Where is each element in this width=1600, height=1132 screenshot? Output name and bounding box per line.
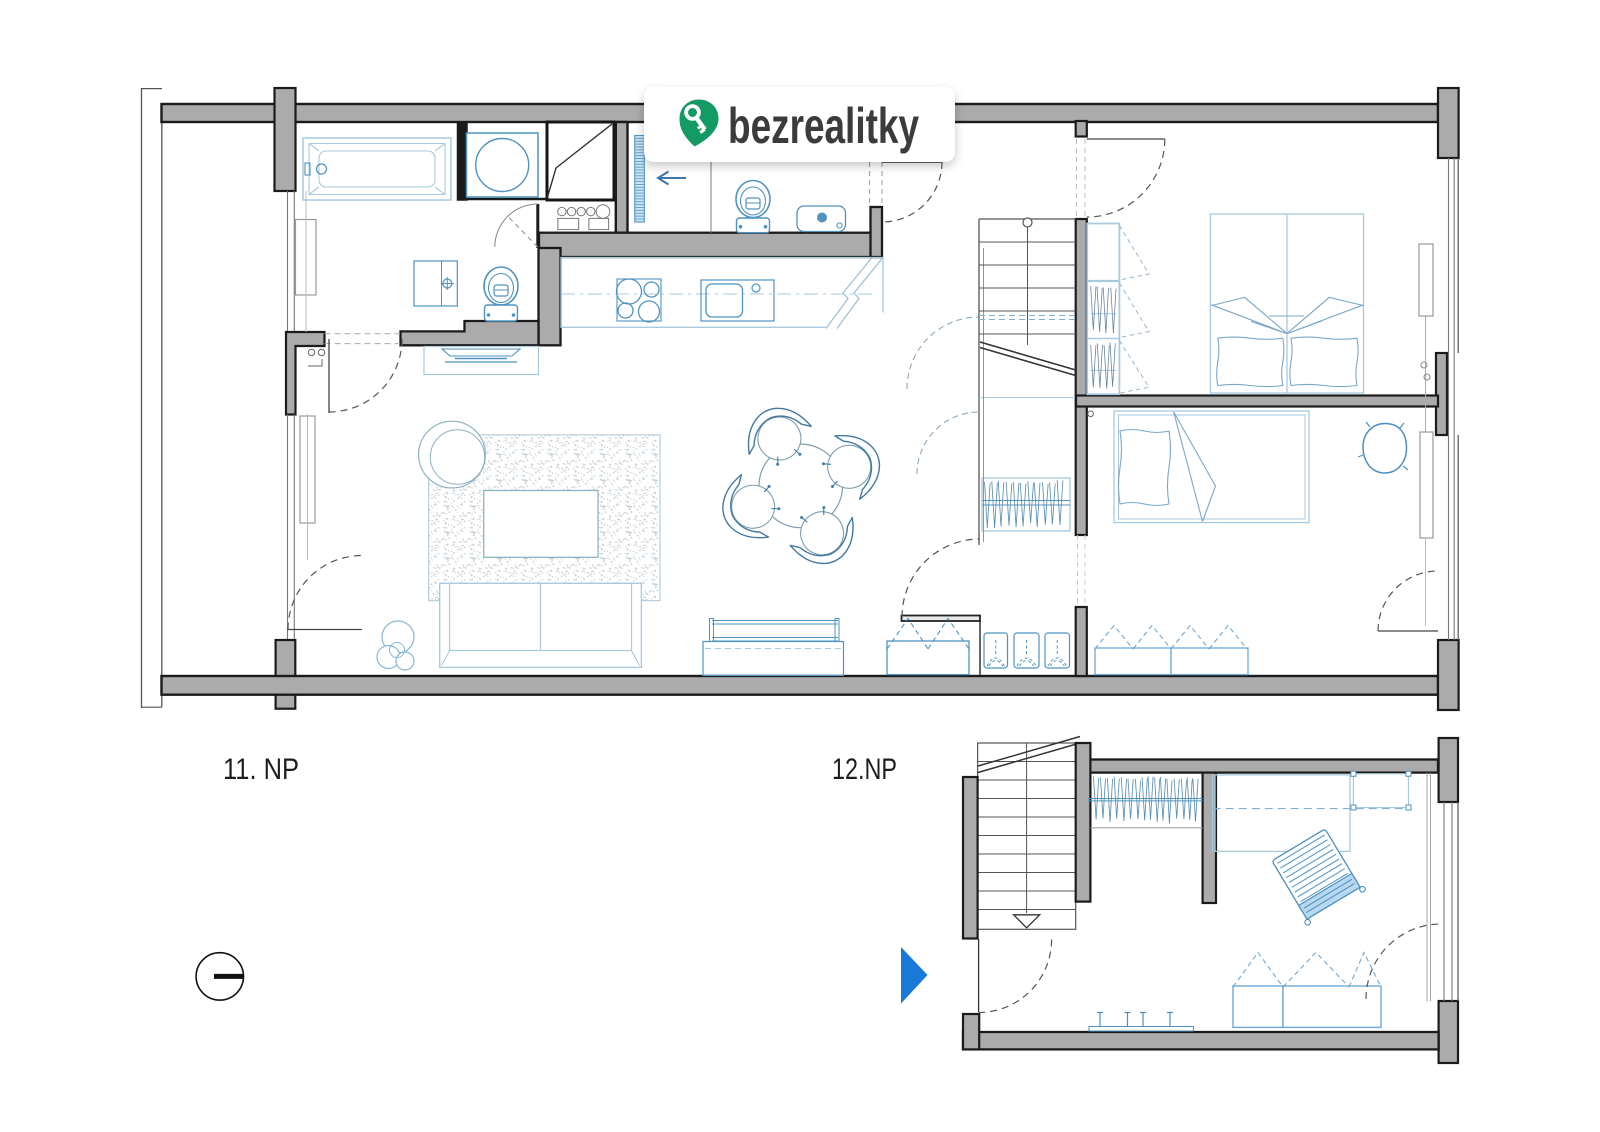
svg-text:bezrealitky: bezrealitky xyxy=(728,98,919,154)
svg-text:11. NP: 11. NP xyxy=(223,753,299,786)
svg-text:12.NP: 12.NP xyxy=(832,753,897,786)
